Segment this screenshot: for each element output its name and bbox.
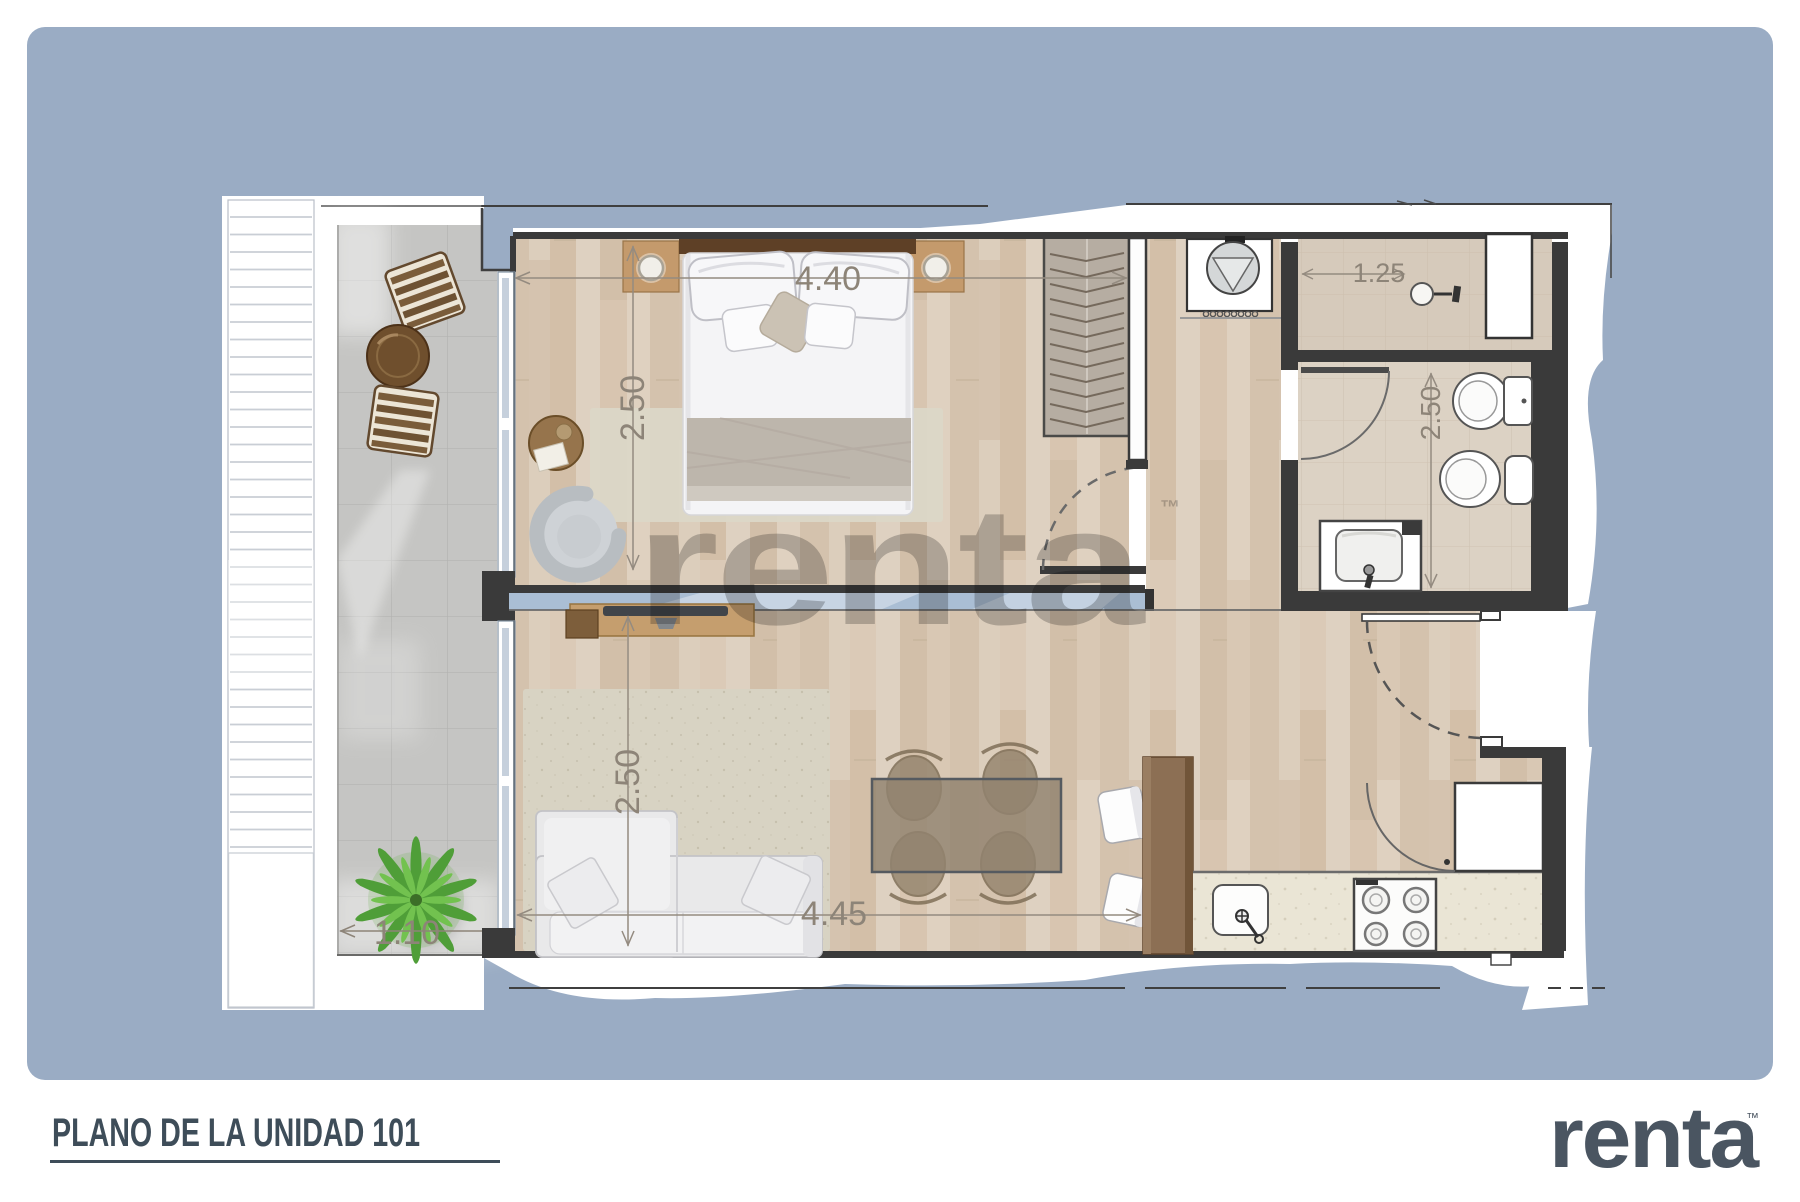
svg-text:™: ™ <box>1160 497 1180 519</box>
svg-text:PLANO DE LA UNIDAD 101: PLANO DE LA UNIDAD 101 <box>52 1111 420 1155</box>
svg-text:2.50: 2.50 <box>609 749 647 815</box>
svg-text:4.45: 4.45 <box>801 895 867 933</box>
svg-text:1.25: 1.25 <box>1353 258 1406 288</box>
svg-text:™: ™ <box>1746 1110 1759 1125</box>
svg-text:2.50: 2.50 <box>1415 386 1446 441</box>
svg-text:renta: renta <box>1549 1090 1760 1186</box>
svg-text:1.10: 1.10 <box>374 914 440 952</box>
svg-text:renta: renta <box>636 472 1147 660</box>
svg-text:2.50: 2.50 <box>614 375 652 441</box>
svg-text:4.40: 4.40 <box>795 260 861 298</box>
